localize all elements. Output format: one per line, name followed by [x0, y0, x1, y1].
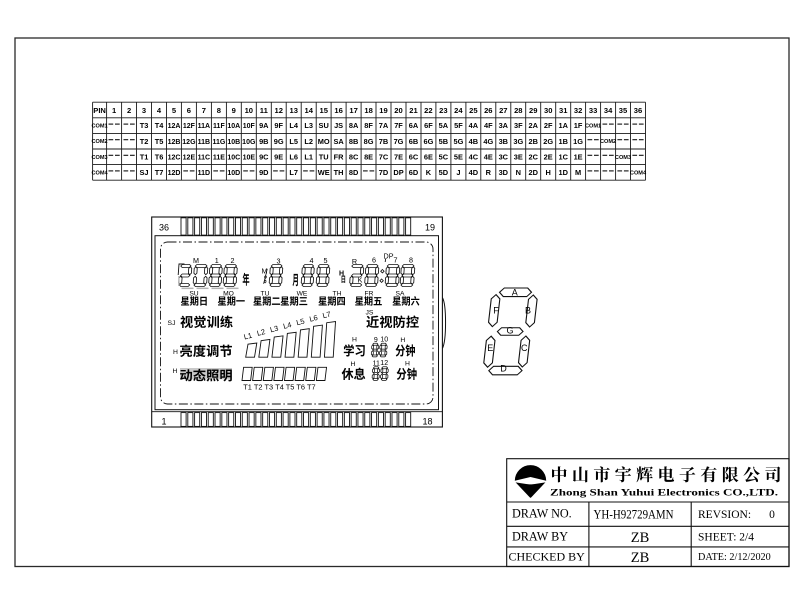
svg-text:COM2: COM2: [92, 139, 108, 145]
svg-text:10F: 10F: [243, 123, 256, 130]
svg-text:18: 18: [364, 106, 372, 115]
svg-text:8F: 8F: [364, 121, 373, 130]
svg-text:E: E: [487, 343, 493, 353]
svg-text:7: 7: [202, 106, 206, 115]
svg-text:H: H: [352, 337, 357, 344]
svg-text:COM4: COM4: [92, 170, 109, 176]
svg-text:7A: 7A: [379, 121, 389, 130]
svg-text:TU: TU: [319, 152, 329, 161]
svg-text:3F: 3F: [514, 121, 523, 130]
svg-text:L3: L3: [304, 121, 313, 130]
svg-text:25: 25: [469, 106, 478, 115]
svg-text:T1: T1: [243, 382, 252, 391]
svg-text:33: 33: [589, 106, 597, 115]
svg-text:12B: 12B: [168, 139, 181, 146]
svg-text:11: 11: [373, 361, 380, 368]
svg-text:1A: 1A: [558, 121, 568, 130]
svg-text:7D: 7D: [379, 168, 389, 177]
svg-text:R: R: [486, 168, 492, 177]
svg-text:34: 34: [604, 106, 613, 115]
svg-text:Zhong Shan Yuhui Electronics C: Zhong Shan Yuhui Electronics CO.,LTD.: [550, 488, 778, 499]
svg-text:SJ: SJ: [139, 168, 148, 177]
svg-text:7F: 7F: [394, 121, 403, 130]
svg-text:1: 1: [161, 417, 166, 427]
svg-text:4G: 4G: [483, 137, 493, 146]
svg-text:1C: 1C: [558, 152, 568, 161]
svg-text:G: G: [506, 326, 513, 336]
svg-text:12D: 12D: [168, 170, 181, 177]
svg-text:L1: L1: [304, 152, 313, 161]
svg-text:9E: 9E: [274, 152, 283, 161]
svg-text:29: 29: [529, 106, 537, 115]
svg-text:9G: 9G: [274, 137, 284, 146]
svg-text:11E: 11E: [213, 154, 225, 161]
svg-text:M: M: [262, 267, 268, 276]
svg-text:6A: 6A: [409, 121, 419, 130]
svg-text:4C: 4C: [469, 152, 479, 161]
svg-text:SJ: SJ: [168, 320, 176, 327]
svg-text:H: H: [546, 168, 551, 177]
svg-text:2A: 2A: [528, 121, 538, 130]
svg-text:2C: 2C: [528, 152, 538, 161]
svg-text:15: 15: [319, 106, 328, 115]
svg-text:12G: 12G: [182, 139, 196, 146]
svg-text:10: 10: [380, 337, 388, 344]
svg-text:DATE: 2/12/2020: DATE: 2/12/2020: [698, 552, 771, 563]
svg-text:5B: 5B: [439, 137, 448, 146]
svg-text:24: 24: [454, 106, 463, 115]
svg-text:L6: L6: [289, 152, 298, 161]
svg-text:28: 28: [514, 106, 522, 115]
svg-text:T4: T4: [155, 121, 165, 130]
svg-text:R: R: [352, 257, 357, 266]
svg-text:DRAW NO.: DRAW NO.: [512, 507, 572, 521]
svg-text:9B: 9B: [259, 137, 268, 146]
svg-text:5E: 5E: [454, 152, 463, 161]
svg-text:26: 26: [484, 106, 492, 115]
svg-text:MO: MO: [223, 290, 234, 297]
svg-text:5: 5: [324, 256, 328, 265]
svg-text:12F: 12F: [183, 123, 196, 130]
svg-text:8E: 8E: [364, 152, 373, 161]
svg-text:11B: 11B: [198, 139, 210, 146]
svg-text:9: 9: [232, 106, 236, 115]
svg-text:TH: TH: [333, 290, 342, 297]
svg-text:36: 36: [634, 106, 642, 115]
svg-text:6G: 6G: [423, 137, 433, 146]
svg-text:MO: MO: [318, 137, 330, 146]
svg-text:T1: T1: [140, 152, 149, 161]
svg-text:5F: 5F: [454, 121, 463, 130]
svg-text:6B: 6B: [409, 137, 418, 146]
svg-text:K: K: [426, 168, 432, 177]
svg-text:30: 30: [544, 106, 552, 115]
svg-text:T4: T4: [275, 382, 284, 391]
svg-text:7B: 7B: [379, 137, 388, 146]
svg-text:COM1: COM1: [585, 124, 601, 130]
svg-text:L7: L7: [289, 168, 298, 177]
svg-text:ZB: ZB: [631, 530, 650, 546]
svg-text:6: 6: [187, 106, 191, 115]
svg-text:8D: 8D: [349, 168, 359, 177]
svg-text:5A: 5A: [439, 121, 449, 130]
svg-text:3B: 3B: [499, 137, 508, 146]
svg-text:SA: SA: [396, 290, 405, 297]
svg-text:9C: 9C: [259, 152, 269, 161]
svg-text:COM3: COM3: [92, 155, 108, 161]
svg-text:6: 6: [372, 256, 376, 265]
svg-text:0: 0: [769, 509, 775, 521]
svg-text:11G: 11G: [212, 139, 225, 146]
svg-text:10C: 10C: [227, 154, 240, 161]
svg-text:3D: 3D: [499, 168, 509, 177]
svg-text:COM4: COM4: [630, 170, 647, 176]
svg-text:14: 14: [304, 106, 313, 115]
svg-text:T6: T6: [296, 382, 305, 391]
svg-text:13: 13: [289, 106, 297, 115]
svg-text:4E: 4E: [484, 152, 493, 161]
svg-text:7G: 7G: [394, 137, 404, 146]
svg-text:3: 3: [142, 106, 146, 115]
svg-text:B: B: [525, 306, 531, 316]
svg-text:8: 8: [217, 106, 221, 115]
svg-text:D: D: [500, 364, 507, 374]
svg-text:FR: FR: [365, 290, 374, 297]
svg-text:C: C: [521, 343, 528, 353]
svg-text:WE: WE: [297, 290, 308, 297]
svg-text:T2: T2: [254, 382, 263, 391]
svg-text:6C: 6C: [409, 152, 419, 161]
svg-text:4F: 4F: [484, 121, 493, 130]
svg-text:L5: L5: [289, 137, 298, 146]
svg-text:1B: 1B: [558, 137, 567, 146]
svg-text:4A: 4A: [469, 121, 479, 130]
svg-text:5D: 5D: [439, 168, 449, 177]
svg-text:2: 2: [127, 106, 131, 115]
svg-text:SU: SU: [189, 290, 198, 297]
svg-text:F: F: [493, 306, 499, 316]
svg-text:8C: 8C: [349, 152, 359, 161]
svg-text:12: 12: [274, 106, 282, 115]
svg-text:WE: WE: [318, 168, 330, 177]
svg-text:11F: 11F: [213, 123, 225, 130]
svg-text:19: 19: [379, 106, 387, 115]
svg-text:11D: 11D: [198, 170, 210, 177]
svg-text:9D: 9D: [259, 168, 269, 177]
svg-text:1D: 1D: [558, 168, 568, 177]
svg-text:2G: 2G: [543, 137, 553, 146]
svg-text:27: 27: [499, 106, 507, 115]
svg-text:12A: 12A: [168, 123, 181, 130]
svg-text:TU: TU: [261, 290, 270, 297]
svg-text:N: N: [516, 168, 521, 177]
svg-text:11: 11: [260, 106, 269, 115]
svg-text:L4: L4: [289, 121, 299, 130]
svg-text:10: 10: [245, 106, 253, 115]
svg-text:CHECKED BY: CHECKED BY: [509, 550, 586, 564]
svg-text:H: H: [173, 349, 178, 356]
svg-text:PIN: PIN: [93, 106, 106, 115]
svg-text:17: 17: [349, 106, 357, 115]
svg-text:T2: T2: [140, 137, 149, 146]
svg-text:1F: 1F: [574, 121, 583, 130]
svg-text:12E: 12E: [183, 154, 196, 161]
svg-text:5G: 5G: [453, 137, 463, 146]
svg-text:SA: SA: [333, 137, 344, 146]
svg-text:7C: 7C: [379, 152, 389, 161]
svg-text:L2: L2: [304, 137, 313, 146]
svg-text:6D: 6D: [409, 168, 419, 177]
svg-text:10G: 10G: [242, 139, 256, 146]
svg-text:9: 9: [374, 337, 378, 344]
svg-text:REVSION:: REVSION:: [698, 509, 751, 521]
svg-text:12C: 12C: [168, 154, 181, 161]
svg-text:TH: TH: [334, 168, 344, 177]
svg-text:11A: 11A: [198, 123, 210, 130]
svg-text:YH-H92729AMN: YH-H92729AMN: [594, 508, 674, 522]
svg-text:J: J: [456, 168, 460, 177]
svg-text:ZB: ZB: [631, 550, 650, 566]
svg-text:T3: T3: [140, 121, 149, 130]
svg-text:3C: 3C: [499, 152, 509, 161]
svg-text:SHEET: 2/4: SHEET: 2/4: [698, 532, 754, 544]
svg-text:2D: 2D: [528, 168, 538, 177]
svg-text:7: 7: [394, 256, 398, 265]
svg-text:8: 8: [409, 256, 413, 265]
svg-text:A: A: [512, 288, 518, 298]
svg-text:H: H: [400, 337, 405, 344]
svg-text:3E: 3E: [514, 152, 523, 161]
svg-text:21: 21: [409, 106, 418, 115]
svg-text:1E: 1E: [574, 152, 583, 161]
svg-text:4B: 4B: [469, 137, 478, 146]
svg-text:M: M: [575, 168, 581, 177]
svg-text:7E: 7E: [394, 152, 403, 161]
svg-text:5C: 5C: [439, 152, 449, 161]
svg-text:9A: 9A: [259, 121, 269, 130]
svg-text:FR: FR: [334, 152, 345, 161]
svg-text:1: 1: [215, 256, 219, 265]
svg-text:23: 23: [439, 106, 447, 115]
svg-text:COM3: COM3: [615, 155, 631, 161]
svg-text:H: H: [351, 361, 356, 368]
svg-text:31: 31: [559, 106, 568, 115]
svg-text:10E: 10E: [243, 154, 256, 161]
svg-text:2E: 2E: [544, 152, 553, 161]
svg-text:35: 35: [619, 106, 628, 115]
svg-text:11C: 11C: [198, 154, 210, 161]
svg-text:3A: 3A: [499, 121, 509, 130]
svg-text:T5: T5: [286, 382, 295, 391]
svg-text:K: K: [358, 276, 363, 285]
svg-text:16: 16: [334, 106, 342, 115]
svg-text:8G: 8G: [364, 137, 374, 146]
svg-text:4D: 4D: [469, 168, 479, 177]
svg-text:10D: 10D: [227, 170, 240, 177]
svg-text:3G: 3G: [513, 137, 523, 146]
svg-text:36: 36: [159, 223, 169, 233]
svg-text:8B: 8B: [349, 137, 358, 146]
svg-text:2B: 2B: [528, 137, 537, 146]
svg-text:6E: 6E: [424, 152, 433, 161]
svg-text:22: 22: [424, 106, 432, 115]
svg-text:19: 19: [425, 223, 435, 233]
svg-text:SU: SU: [319, 121, 329, 130]
svg-text:4: 4: [310, 256, 314, 265]
svg-text:3: 3: [277, 257, 281, 266]
svg-text:M: M: [193, 256, 199, 265]
svg-text:18: 18: [422, 417, 432, 427]
svg-text:2F: 2F: [544, 121, 553, 130]
svg-text:6F: 6F: [424, 121, 433, 130]
svg-text:2: 2: [231, 256, 235, 265]
svg-text:DP: DP: [393, 168, 403, 177]
svg-text:T3: T3: [264, 382, 273, 391]
svg-text:10B: 10B: [227, 139, 240, 146]
svg-text:T7: T7: [307, 382, 316, 391]
svg-text:T7: T7: [155, 168, 164, 177]
svg-text:H: H: [173, 368, 178, 375]
svg-text:DP: DP: [384, 252, 394, 261]
svg-text:9F: 9F: [274, 121, 283, 130]
svg-text:COM1: COM1: [92, 124, 108, 130]
svg-text:JS: JS: [366, 310, 374, 317]
svg-text:T5: T5: [155, 137, 164, 146]
svg-text:T6: T6: [155, 152, 164, 161]
svg-text:10A: 10A: [227, 123, 240, 130]
svg-text:8A: 8A: [349, 121, 359, 130]
svg-text:JS: JS: [334, 121, 343, 130]
svg-text:1G: 1G: [573, 137, 583, 146]
svg-text:12: 12: [380, 360, 388, 367]
svg-text:H: H: [405, 361, 410, 368]
svg-text:20: 20: [394, 106, 402, 115]
svg-text:COM2: COM2: [600, 139, 616, 145]
svg-text:DRAW BY: DRAW BY: [512, 530, 568, 544]
svg-text:32: 32: [574, 106, 582, 115]
